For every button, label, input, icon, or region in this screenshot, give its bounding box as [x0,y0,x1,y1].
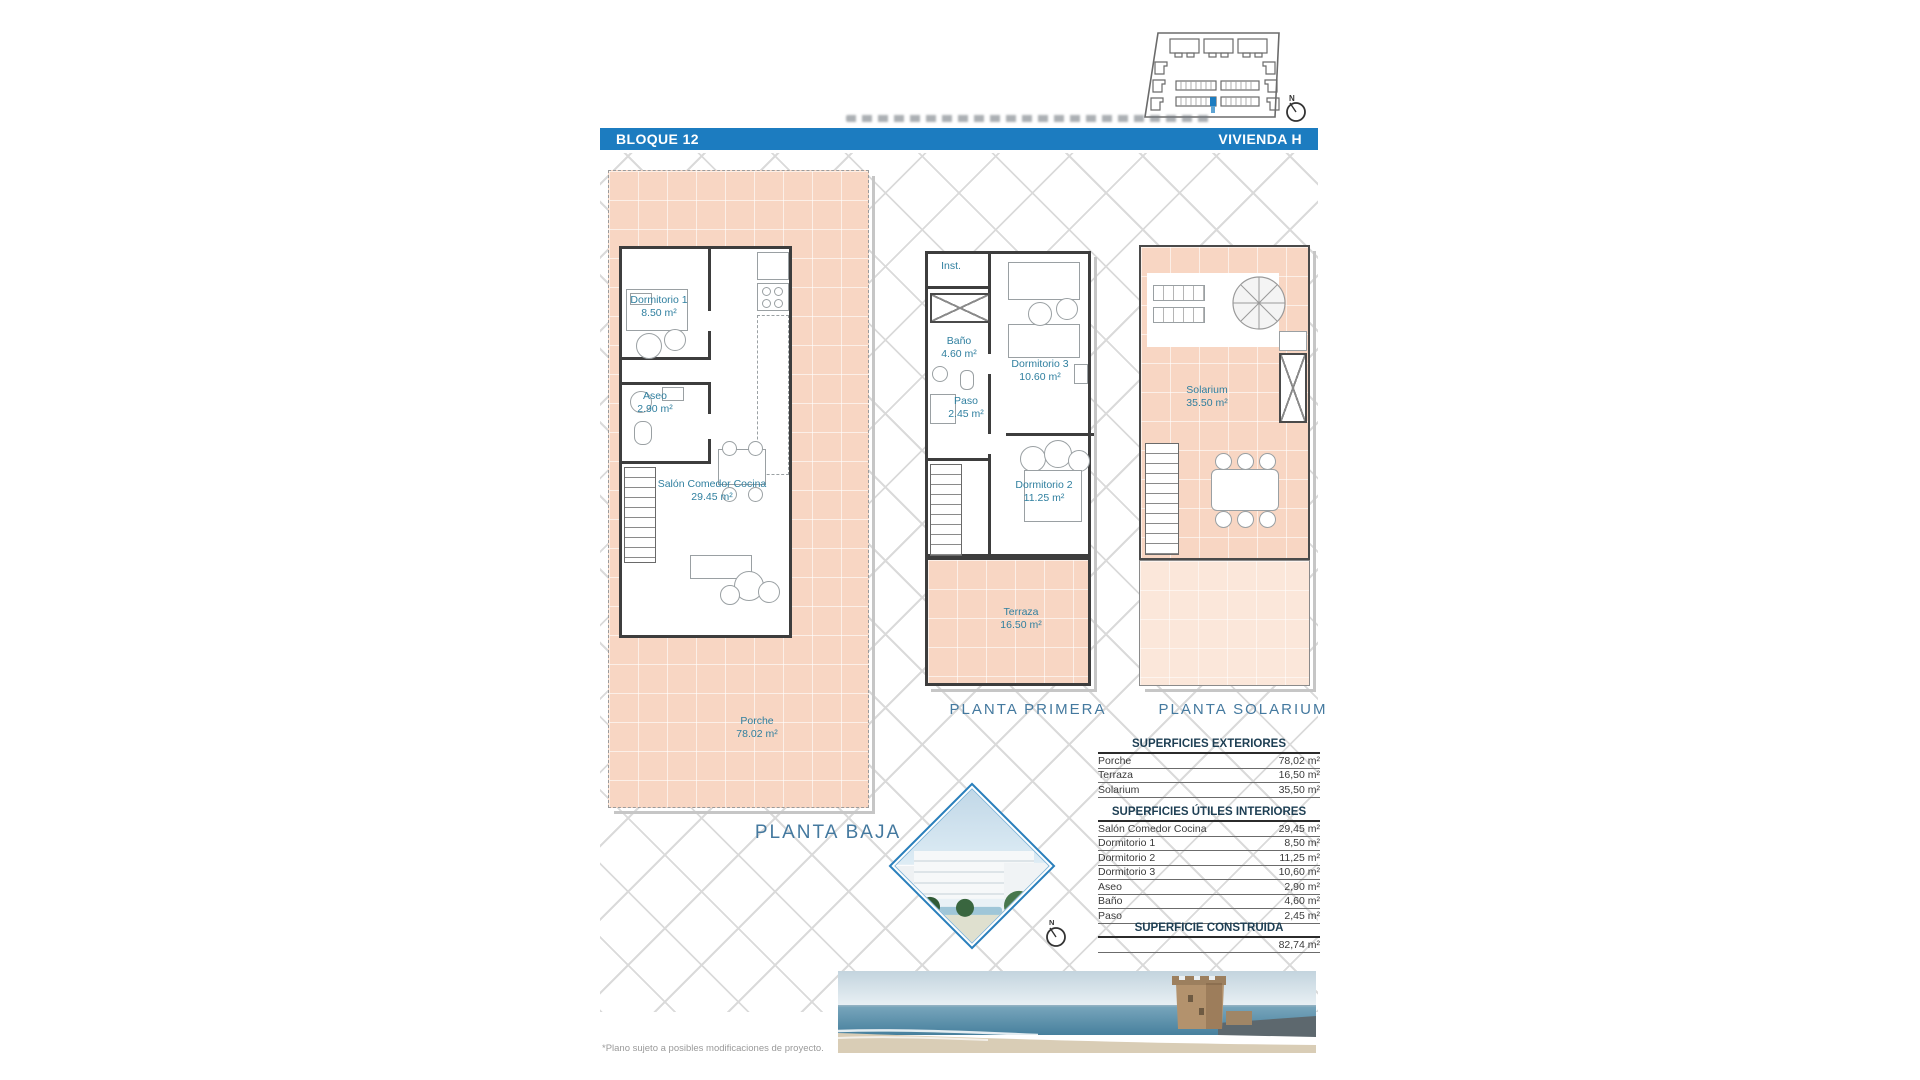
wall [1006,433,1094,436]
wall [928,286,991,289]
umbrella-icon [1229,273,1289,333]
furniture-chair [1259,453,1276,470]
wall [708,331,711,360]
wall [928,458,991,461]
wall [622,382,711,385]
illegible-project-caption [846,115,1214,122]
plan-planta-solarium [1139,245,1310,686]
furniture-rug [758,581,780,603]
furniture-bed [1008,262,1080,300]
furniture-chair [1028,302,1052,326]
compass-n-label: N [1289,94,1295,103]
furniture-chair [664,329,686,351]
furniture-chair [1068,450,1090,472]
room-label-dormitorio-2: Dormitorio 2 11.25 m² [994,479,1094,505]
surface-table-exteriores: SUPERFICIES EXTERIORES Porche 78,02 m² T… [1098,738,1320,798]
plan-title-baja: PLANTA BAJA [728,822,928,844]
room-label-dormitorio-1: Dormitorio 1 8.50 m² [609,294,709,320]
unit-label: VIVIENDA H [1218,131,1302,147]
furniture-chair [1020,446,1046,472]
table-title: SUPERFICIES EXTERIORES [1098,738,1320,754]
room-label-dormitorio-3: Dormitorio 3 10.60 m² [990,358,1090,384]
furniture-toilet [960,370,974,390]
furniture-chair [1215,511,1232,528]
shaft-box [930,293,990,323]
room-label-terraza: Terraza 16.50 m² [971,606,1071,632]
furniture-sink [932,366,948,382]
lower-roof-area [1139,560,1310,686]
table-row: Terraza 16,50 m² [1098,769,1320,784]
render-compass-icon: N [1042,916,1070,950]
render-tree [956,899,974,917]
furniture-lounger [1153,285,1205,301]
site-plan-map [1128,24,1290,126]
stairs-primera [930,464,962,556]
room-label-porche: Porche 78.02 m² [707,715,807,741]
highlighted-unit [1210,97,1216,106]
rooflight-box [1279,331,1307,351]
furniture-chair [1056,298,1078,320]
furniture-chair [748,441,763,456]
room-label-bano: Baño 4.60 m² [919,335,999,361]
hob-burner [762,287,771,296]
stairs-solarium [1145,443,1179,555]
table-row: 82,74 m² [1098,938,1320,953]
footnote: *Plano sujeto a posibles modificaciones … [602,1043,1002,1054]
furniture-chair [722,441,737,456]
table-row: Dormitorio 1 8,50 m² [1098,837,1320,852]
header-bar: BLOQUE 12 VIVIENDA H [600,128,1318,150]
furniture-table [1211,469,1279,511]
hob-burner [774,287,783,296]
furniture-lounger [1153,307,1205,323]
block-label: BLOQUE 12 [616,131,699,147]
wall [988,454,991,554]
table-row: Dormitorio 3 10,60 m² [1098,866,1320,881]
wall [708,382,711,414]
furniture-rug [720,585,740,605]
surface-table-construida: SUPERFICIE CONSTRUIDA 82,74 m² [1098,922,1320,953]
surface-table-interiores: SUPERFICIES ÚTILES INTERIORES Salón Come… [1098,806,1320,924]
furniture-bed [1008,324,1080,358]
hob-burner [762,299,771,308]
north-compass-icon: N [1280,92,1310,124]
table-title: SUPERFICIES ÚTILES INTERIORES [1098,806,1320,822]
stair-void-box [1279,353,1307,423]
furniture-chair [1237,511,1254,528]
table-row: Aseo 2,90 m² [1098,880,1320,895]
wall [622,357,711,360]
furniture-kitchen-hob [757,283,789,311]
table-row: Dormitorio 2 11,25 m² [1098,851,1320,866]
floorplan-sheet: N BLOQUE 12 VIVIENDA H [0,0,1920,1080]
furniture-kitchen-sink [757,252,789,280]
table-row: Solarium 35,50 m² [1098,783,1320,798]
table-row: Salón Comedor Cocina 29,45 m² [1098,822,1320,837]
room-label-solarium: Solarium 35.50 m² [1157,384,1257,410]
beach-photo [838,971,1316,1053]
room-label-inst: Inst. [921,260,981,273]
furniture-chair [1259,511,1276,528]
wall [708,439,711,464]
furniture-chair [1215,453,1232,470]
furniture-chair [636,333,662,359]
table-title: SUPERFICIE CONSTRUIDA [1098,922,1320,938]
hob-burner [774,299,783,308]
table-row: Baño 4,60 m² [1098,895,1320,910]
room-label-salon: Salón Comedor Cocina 29.45 m² [652,478,772,504]
furniture-toilet [634,421,652,445]
furniture-chair [1237,453,1254,470]
wall [622,461,711,464]
compass-n-label: N [1049,918,1054,927]
room-label-aseo: Aseo 2.90 m² [605,390,705,416]
plan-title-primera: PLANTA PRIMERA [928,701,1128,718]
room-label-paso: Paso 2.45 m² [926,395,1006,421]
plan-title-solarium: PLANTA SOLARIUM [1143,701,1343,718]
table-row: Porche 78,02 m² [1098,754,1320,769]
